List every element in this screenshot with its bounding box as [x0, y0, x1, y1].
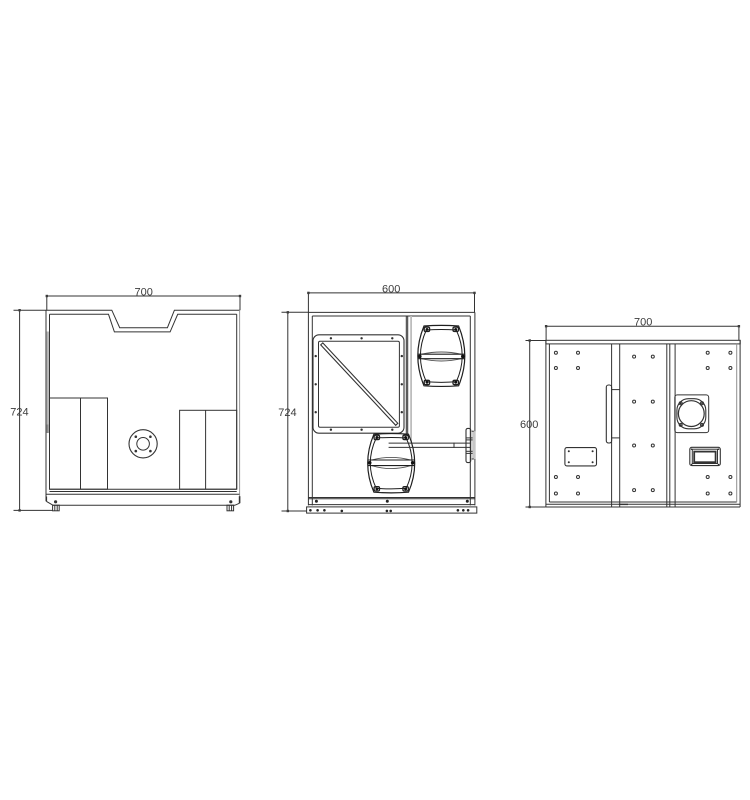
svg-text:700: 700 [634, 317, 652, 329]
svg-text:700: 700 [135, 287, 153, 299]
svg-text:600: 600 [520, 419, 538, 431]
svg-text:600: 600 [382, 284, 400, 296]
svg-text:724: 724 [10, 406, 28, 418]
svg-text:724: 724 [278, 407, 296, 419]
